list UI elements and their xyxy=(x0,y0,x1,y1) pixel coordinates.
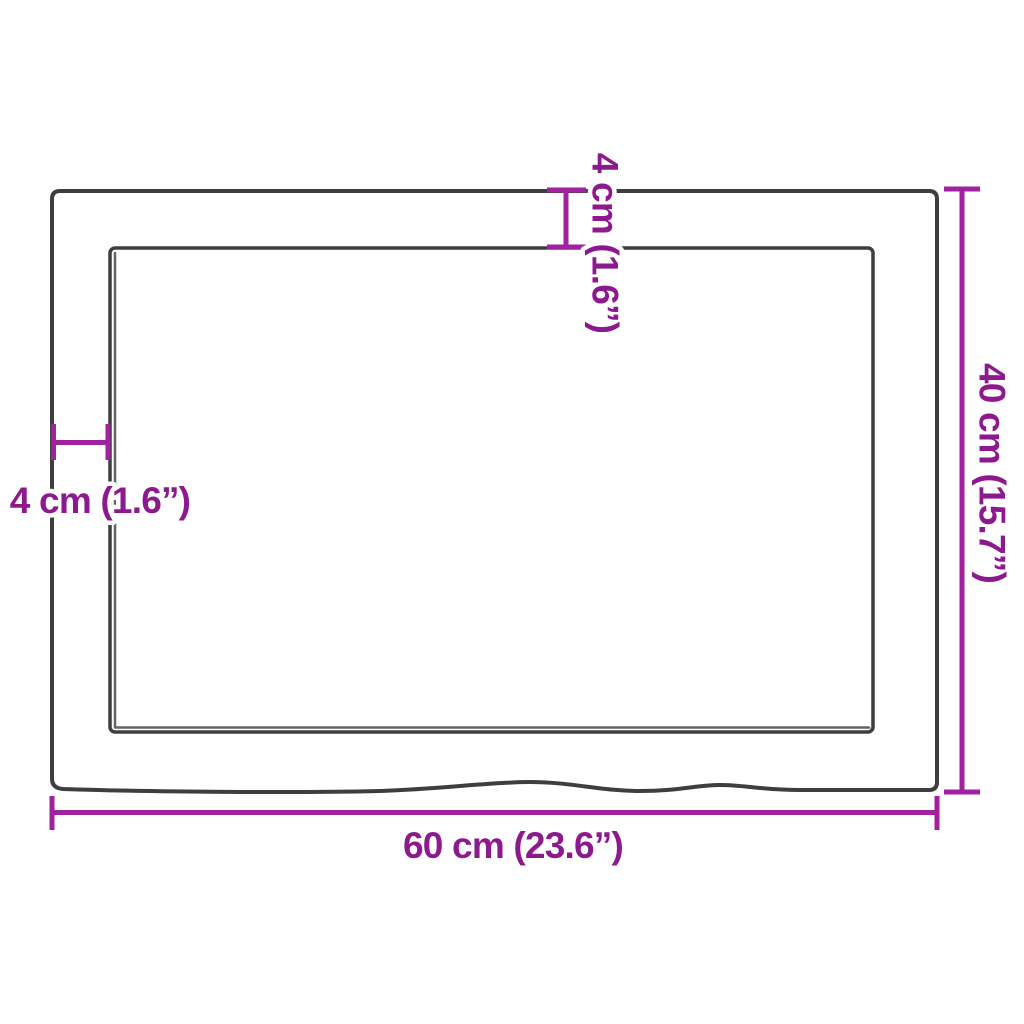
depth-dimension-label: 40 cm (15.7”) xyxy=(972,363,1013,583)
product-dimension-diagram: 60 cm (23.6”) 40 cm (15.7”) 4 cm (1.6”) … xyxy=(0,0,1024,1024)
thickness-left-dimension-label: 4 cm (1.6”) xyxy=(10,480,190,521)
tabletop-inner-edge xyxy=(110,248,873,732)
width-dimension-label: 60 cm (23.6”) xyxy=(403,825,623,866)
thickness-top-dimension-label: 4 cm (1.6”) xyxy=(585,153,626,333)
